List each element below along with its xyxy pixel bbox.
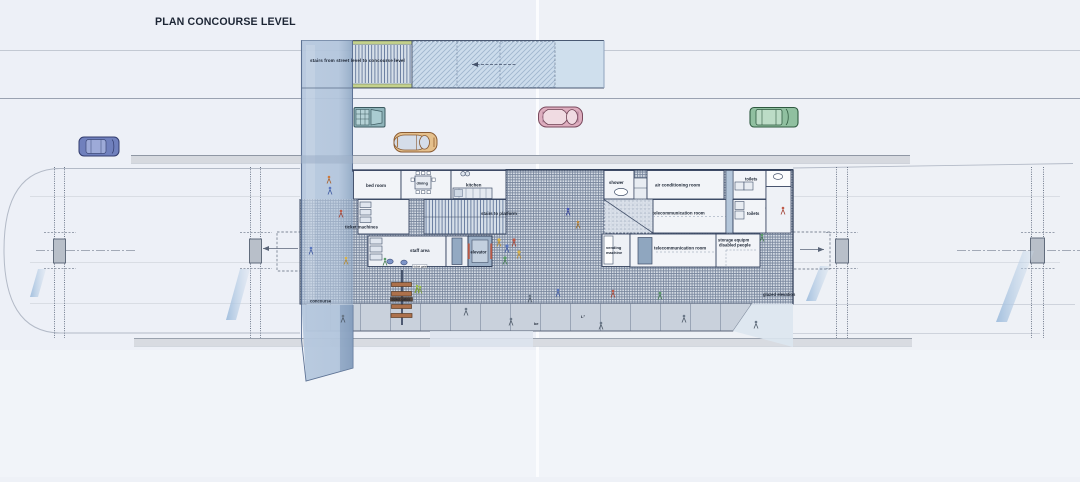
svg-text:toilets: toilets	[745, 177, 758, 182]
svg-text:toilets: toilets	[747, 211, 760, 216]
svg-text:ke: ke	[534, 321, 539, 326]
svg-text:telecommunication room: telecommunication room	[654, 246, 706, 251]
svg-text:shower: shower	[609, 180, 624, 185]
svg-text:stairs to platform: stairs to platform	[481, 211, 517, 216]
svg-text:dining: dining	[417, 182, 429, 186]
svg-text:glazed elevation: glazed elevation	[763, 292, 796, 297]
svg-text:bed room: bed room	[366, 183, 386, 188]
svg-text:ticket machines: ticket machines	[345, 225, 379, 230]
svg-text:air conditioning room: air conditioning room	[655, 183, 700, 188]
svg-text:disabled people: disabled people	[719, 243, 751, 248]
svg-text:L²: L²	[581, 314, 585, 319]
svg-text:kitchen: kitchen	[466, 183, 482, 188]
svg-text:staff area: staff area	[410, 248, 430, 253]
svg-text:concourse: concourse	[310, 299, 332, 304]
svg-text:elevator: elevator	[471, 250, 487, 255]
svg-text:ticket gates: ticket gates	[392, 298, 411, 302]
svg-text:stairs from street level to co: stairs from street level to concourse le…	[310, 58, 405, 63]
svg-text:PLAN CONCOURSE LEVEL: PLAN CONCOURSE LEVEL	[155, 16, 296, 28]
svg-text:ticket gates: ticket gates	[414, 265, 429, 269]
svg-text:machine: machine	[606, 250, 623, 255]
svg-text:telecommunication room: telecommunication room	[653, 211, 705, 216]
